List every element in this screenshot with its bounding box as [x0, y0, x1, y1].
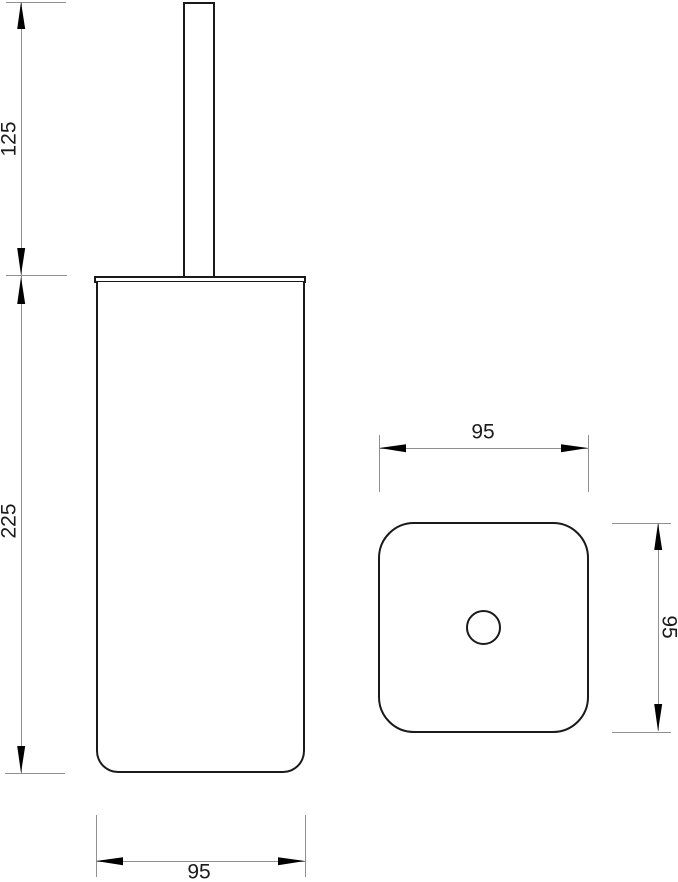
vertical-dimension-arrows — [17, 2, 25, 773]
dim-label-front-lower-height: 225 — [0, 503, 20, 538]
dim-label-top-depth: 95 — [659, 615, 678, 638]
dim-label-front-upper-height: 125 — [0, 121, 20, 156]
front-view-handle-outline — [183, 2, 215, 277]
dim-label-front-width: 95 — [187, 862, 210, 882]
front-view-body-outline — [96, 282, 305, 773]
vertical-dimension-chain — [5, 2, 67, 774]
arrow-up-icon — [17, 2, 25, 29]
arrow-down-icon — [17, 746, 25, 773]
arrow-down-icon — [17, 248, 25, 275]
dim-label-top-width: 95 — [471, 422, 494, 443]
top-view-width-arrows — [379, 444, 588, 452]
top-view-width-dimension — [379, 435, 589, 492]
arrow-left-icon — [379, 444, 406, 452]
top-view-center-hole — [466, 610, 501, 645]
arrow-right-icon — [278, 857, 305, 865]
arrow-right-icon — [561, 444, 588, 452]
arrow-left-icon — [96, 857, 123, 865]
arrow-up-icon — [17, 277, 25, 304]
arrow-down-icon — [654, 704, 662, 731]
technical-drawing-canvas: 125 225 95 95 95 — [0, 0, 678, 882]
arrow-up-icon — [654, 523, 662, 550]
